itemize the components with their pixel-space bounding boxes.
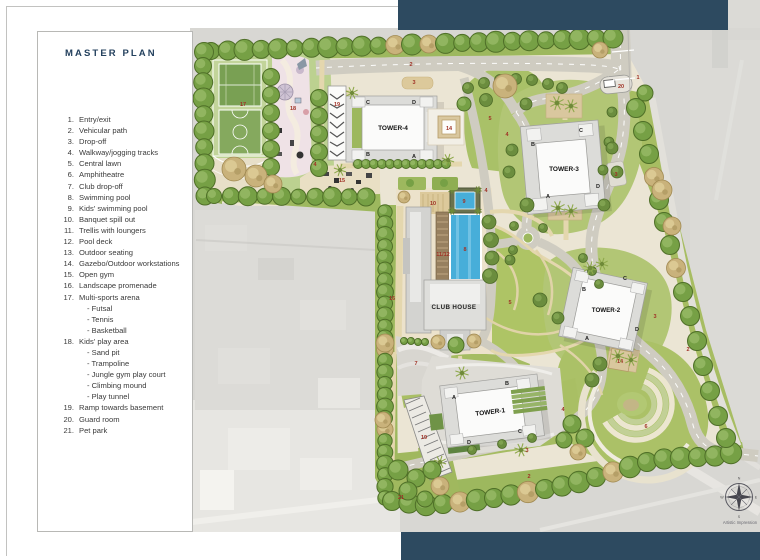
svg-text:8: 8: [463, 247, 466, 253]
svg-text:19: 19: [334, 102, 340, 108]
svg-text:C: C: [623, 276, 627, 282]
svg-text:9: 9: [462, 199, 465, 205]
svg-text:TOWER-3: TOWER-3: [549, 166, 579, 173]
svg-text:3: 3: [525, 448, 528, 454]
svg-text:A: A: [546, 194, 550, 200]
svg-text:11/12: 11/12: [436, 252, 449, 258]
svg-text:5: 5: [488, 116, 491, 122]
svg-text:A: A: [452, 395, 456, 401]
svg-text:2: 2: [686, 347, 689, 353]
svg-text:21: 21: [398, 495, 404, 501]
svg-text:2: 2: [527, 474, 530, 480]
svg-text:6: 6: [644, 424, 647, 430]
svg-text:18: 18: [290, 106, 296, 112]
svg-text:19: 19: [421, 435, 427, 441]
svg-text:3: 3: [614, 172, 617, 178]
svg-text:D: D: [596, 184, 600, 190]
svg-text:5: 5: [508, 300, 511, 306]
svg-text:C: C: [366, 100, 370, 106]
svg-text:20: 20: [618, 84, 624, 90]
svg-text:B: B: [505, 381, 509, 387]
svg-text:17: 17: [240, 102, 246, 108]
svg-text:B: B: [582, 287, 586, 293]
svg-text:C: C: [579, 128, 583, 134]
svg-text:3: 3: [412, 80, 415, 86]
svg-text:CLUB HOUSE: CLUB HOUSE: [432, 304, 477, 311]
svg-text:TOWER-2: TOWER-2: [592, 307, 621, 314]
svg-text:B: B: [531, 142, 535, 148]
svg-text:C: C: [518, 429, 522, 435]
svg-text:16: 16: [389, 296, 395, 302]
svg-text:7: 7: [414, 361, 417, 367]
svg-text:B: B: [366, 152, 370, 158]
svg-text:TOWER-4: TOWER-4: [378, 125, 408, 132]
svg-text:D: D: [635, 327, 639, 333]
svg-text:A: A: [585, 336, 589, 342]
svg-text:D: D: [412, 100, 416, 106]
svg-text:15: 15: [339, 178, 345, 184]
svg-text:14: 14: [446, 126, 453, 132]
svg-text:W: W: [720, 496, 724, 500]
svg-text:3: 3: [653, 314, 656, 320]
svg-text:Artistic Impression: Artistic Impression: [723, 520, 758, 525]
svg-text:10: 10: [430, 201, 436, 207]
svg-text:N: N: [738, 477, 741, 481]
svg-text:1: 1: [636, 75, 639, 81]
svg-text:D: D: [467, 440, 471, 446]
svg-text:2: 2: [409, 62, 412, 68]
